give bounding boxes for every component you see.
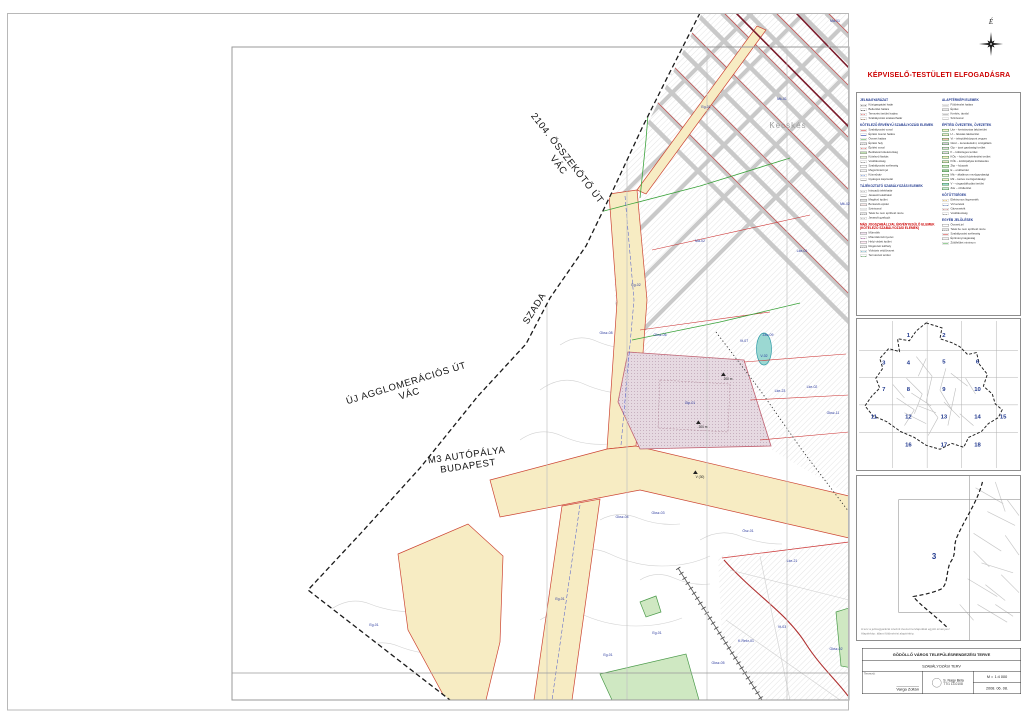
zone-label: Eg-01 [701,105,710,109]
index-sheet-number: 16 [905,442,912,448]
legend-swatch-icon [942,117,949,120]
legend-swatch-icon [860,108,867,111]
legend-swatch-icon [860,174,867,177]
legend-item-label: Gip – ipari gazdasági terület [951,147,986,150]
legend-item-label: Vt – településközpont vegyes [951,138,987,141]
legend-item-label: KÖk – kötöttpályás közlekedés [951,160,989,163]
legend-swatch-icon [860,232,867,235]
sheet-locator-panel: 3 A terv a jelmagyarázat szerinti övezet… [856,475,1021,641]
zone-label: V-02 [760,354,767,358]
locator-note: A terv a jelmagyarázat szerinti övezeti … [861,627,950,631]
north-label: É [988,18,994,26]
index-municipal-outline [865,323,1002,449]
title-block: GÖDÖLLŐ VÁROS TELEPÜLÉSRENDEZÉSI TERVE S… [862,648,1021,694]
index-sheet-number: 3 [882,360,886,366]
zone-label: Gksz-04 [615,515,628,519]
plan-subtitle: SZABÁLYOZÁSI TERV [863,661,1021,672]
legend-section-header: EGYÉB JELÖLÉSEK [942,219,1021,223]
index-sheet-number: 8 [907,387,911,393]
zone-label: Gksz-06 [653,333,666,337]
legend-item-label: Bontandó épület [869,203,889,206]
legend-item: Zöldfelület minimum [942,241,1021,246]
legend-swatch-icon [942,108,949,111]
plan-sheet: Má-01Mk-01Eg-01Mk-02Lke-01Má-02Eg-02Gksz… [0,0,1024,723]
legend-item-label: Zöldfelület minimum [951,242,976,245]
legend-item-label: Javasolt gyalogút [869,217,891,220]
legend-item-label: Megszüntető jel [869,169,889,172]
legend-swatch-icon [860,169,867,172]
legend-item-label: Kötelező fásítás [869,156,889,159]
legend-column-left: JELMAGYARÁZATKözigazgatási határBelterül… [860,96,939,258]
legend-item-label: Telek be nem építhető része [951,228,986,231]
zone-label: Gksz-05 [711,661,724,665]
road-name-label: ÚJ AGGLOMERÁCIÓS ÚTVÁC [345,360,471,418]
legend-item-label: Kerítés, támfal [951,113,969,116]
zone-label: Ösz-01 [742,529,753,533]
legend-item-label: Szabályozási szélesség [869,165,899,168]
zone-label: Mk-01 [777,97,787,101]
legend-item-label: Beültetési kötelezettség [869,151,899,154]
legend-swatch-icon [942,228,949,231]
legend-item-label: Zkp – közpark [951,165,969,168]
locator-sheet-number: 3 [932,552,937,561]
legend-swatch-icon [942,178,949,181]
locator-notes: A terv a jelmagyarázat szerinti övezeti … [861,627,950,635]
legend-item-label: Régészeti lelőhely [869,245,892,248]
legend-item-label: Javasolt telekhatár [869,194,892,197]
index-sheet-number: 9 [942,387,946,393]
legend-swatch-icon [860,217,867,220]
legend-swatch-icon [942,224,949,227]
index-sheet-number: 17 [941,442,948,448]
legend-swatch-icon [942,138,949,141]
svg-text:2104. ÖSSZEKÖTŐ ÚT: 2104. ÖSSZEKÖTŐ ÚT [528,111,605,206]
index-sheet-number: 5 [942,359,946,365]
zone-label: Gksz-08 [599,331,612,335]
zone-label: Mk-02 [840,202,850,206]
legend-swatch-icon [942,133,949,136]
scale-label: M = [987,675,993,680]
legend-swatch-icon [942,203,949,206]
index-sheet-numbers: 123456789101112131415161718 [871,333,1007,449]
legend-item-label: Tervezési terület határa [869,113,898,116]
legend-swatch-icon [860,133,867,136]
legend-swatch-icon [860,190,867,193]
zone-label: Lke-02 [807,385,818,389]
legend-section-header: TÁJÉKOZTATÓ SZABÁLYOZÁSI ELEMEK [860,185,939,189]
legend-swatch-icon [942,242,949,245]
legend-swatch-icon [860,142,867,145]
zone-label: Vt-07 [740,339,748,343]
index-sheet-number: 10 [974,387,981,393]
index-street-sketch [893,357,976,436]
legend-item-label: Irányadó telekhatár [869,190,893,193]
legend-panel: JELMAGYARÁZATKözigazgatási határBelterül… [856,92,1021,316]
legend-swatch-icon [860,212,867,215]
zone-label: Eg-01 [652,631,661,635]
legend-swatch-icon [860,236,867,239]
legend-swatch-icon [942,129,949,132]
legend-swatch-icon [942,142,949,145]
road-name-label: 2104. ÖSSZEKÖTŐ ÚTVÁC [520,111,606,213]
legend-swatch-icon [860,113,867,116]
legend-swatch-icon [942,237,949,240]
legend-swatch-icon [860,147,867,150]
legend-section-header: MÁS JOGSZABÁLLYAL ÉRVÉNYESÜLŐ ELEMEK (KÖ… [860,223,939,230]
index-sheet-number: 4 [907,360,911,366]
zone-label: Vt-03 [778,625,786,629]
legend-swatch-icon [942,147,949,150]
designer-cell: Tervező: Varga Zoltán [863,672,923,694]
legend-swatch-icon [942,156,949,159]
legend-item-label: Védőtávolság [951,212,968,215]
legend-swatch-icon [942,104,949,107]
legend-swatch-icon [860,199,867,202]
legend-item: Javasolt gyalogút [860,216,939,221]
zone-label: Lke-23 [775,389,786,393]
scale-value: 1:4 000 [995,675,1008,680]
legend-swatch-icon [860,129,867,132]
index-sheet-number: 11 [871,415,878,421]
legend-item-label: Lke – kertvárosias lakóterület [951,129,987,132]
legend-item-label: Szabályozási vonal [869,129,893,132]
zone-label: Eg-01 [369,623,378,627]
legend-item-label: Szintvonal [951,117,964,120]
index-grid [859,321,1018,468]
measure-label: V (30) [696,475,705,479]
legend-swatch-icon [860,203,867,206]
legend-section-header: JELMAGYARÁZAT [860,99,939,103]
legend-section-header: ALAPTÉRKÉPI ELEMEK [942,99,1021,103]
index-sheet-number: 1 [907,333,911,339]
legend-item: Záv – zöldterület [942,187,1021,192]
legend-item-label: Építési övezet határa [869,133,895,136]
legend-item-label: Záv – zöldterület [951,187,972,190]
index-sheet-number: 12 [905,415,912,421]
legend-section-header: KÖTÖTTSÉGEK [942,194,1021,198]
legend-section-header: KÖTELEZŐ ÉRVÉNYŰ SZABÁLYOZÁSI ELEMEK [860,124,939,128]
zone-label: Má-01 [830,19,840,23]
legend-swatch-icon [942,169,949,172]
legend-item-label: Helyi védett épület [869,241,892,244]
legend-item-label: Övezeti jel [951,224,964,227]
scale-date-cell: M = 1:4 000 2008. 06. 08. [974,672,1021,694]
legend-item-label: Meglévő épület [869,199,888,202]
north-arrow: É [974,14,1010,62]
plan-date: 2008. 06. 08. [974,683,1021,694]
legend-item-label: Műemléki környezet [869,236,894,239]
index-sheet-number: 2 [942,333,946,339]
designer-label: Tervező: [864,673,875,676]
legend-swatch-icon [860,138,867,141]
legend-item: Természeti terület [860,254,939,259]
legend-swatch-icon [860,178,867,181]
approval-status-title: KÉPVISELŐ-TESTÜLETI ELFOGADÁSRA [854,72,1024,79]
measure-label: 200 m [699,425,708,429]
locator-note: Alaptérkép: állami földmérési alaptérkép… [861,632,915,636]
legend-item-label: Gksz – kereskedelmi, szolgáltató [951,142,992,145]
legend-item-label: Földrészlet határa [951,104,973,107]
locator-boundary [913,482,982,628]
zone-label: Eg-01 [603,653,612,657]
index-sheet-number: 14 [974,415,981,421]
legend-swatch-icon [942,113,949,116]
legend-item-label: Mk – kertes mezőgazdasági [951,178,986,181]
legend-item-label: Építési hely [869,142,883,145]
legend-item-label: E – erdőterület [951,169,969,172]
locator-street-sketch [960,482,1019,622]
stamp-icon [932,678,942,688]
legend-swatch-icon [860,241,867,244]
legend-item-label: Közigazgatási határ [869,104,894,107]
index-map-panel: 123456789101112131415161718 [856,318,1021,471]
legend-swatch-icon [942,212,949,215]
index-sheet-number: 15 [1000,415,1007,421]
compass-star-icon [979,32,1003,56]
legend-item-label: KÖu – közúti közlekedési terület [951,156,991,159]
legend-swatch-icon [860,104,867,107]
zone-label: Gksz-11 [827,411,840,415]
plan-title: GÖDÖLLŐ VÁROS TELEPÜLÉSRENDEZÉSI TERVE [863,649,1021,662]
legend-item-label: V – vízgazdálkodási terület [951,183,984,186]
zone-label: Gksz-02 [829,647,842,651]
legend-swatch-icon [860,165,867,168]
legend-item-label: Vízvezeték [951,203,965,206]
district-label: Kecskés [769,121,806,130]
zone-label: Eg-01 [555,597,564,601]
legend-item-label: Övezet határa [869,138,887,141]
legend-item: Védőtávolság [942,212,1021,217]
legend-item-label: Gyalogos kapcsolat [869,178,893,181]
legend-swatch-icon [860,151,867,154]
map-canvas: Má-01Mk-01Eg-01Mk-02Lke-01Má-02Eg-02Gksz… [7,13,850,711]
legend-swatch-icon [942,160,949,163]
index-sheet-number: 7 [882,387,886,393]
legend-swatch-icon [942,199,949,202]
index-sheet-number: 13 [941,415,948,421]
zone-label: Eg-02 [631,283,640,287]
zone-label: Gksz-03 [651,511,664,515]
legend-section-header: ÉPÍTÉSI ÖVEZETEK, ÖVEZETEK [942,124,1021,128]
legend-swatch-icon [942,165,949,168]
map-content [7,13,850,711]
zone-label: Má-02 [695,239,705,243]
legend-item-label: Természeti terület [869,254,891,257]
legend-swatch-icon [942,187,949,190]
legend-item-label: Szintvonal [869,208,882,211]
architect-cell: S. Nagy Béla TT/1 13-0108 [923,672,974,694]
legend-item-label: K – különleges terület [951,151,978,154]
legend-item-label: Má – általános mezőgazdasági [951,174,990,177]
legend-item-label: Műemlék [869,232,880,235]
legend-item-label: Védőtávolság [869,160,886,163]
legend-swatch-icon [942,151,949,154]
legend-item: Szabályozási szakaszhatár [860,117,939,122]
legend-swatch-icon [860,254,867,257]
designer-name: Varga Zoltán [896,686,919,692]
measure-label: 200 m [724,377,733,381]
zone-label: Gip-01 [685,401,696,405]
zone-label: K-Rekr-01 [738,639,754,643]
legend-item: Gyalogos kapcsolat [860,178,939,183]
legend-item-label: Belterület határa [869,108,890,111]
legend-item-label: Épület [951,108,959,111]
legend-swatch-icon [860,117,867,120]
legend-item-label: Telek be nem építhető része [869,212,904,215]
legend-swatch-icon [942,183,949,186]
legend-item-label: Gázvezeték [951,208,966,211]
legend-swatch-icon [860,245,867,248]
legend-item-label: Lf – falusias lakóterület [951,133,980,136]
legend-item-label: Építménymagasság [951,237,976,240]
legend-swatch-icon [942,174,949,177]
legend-item-label: Szabályozási szakaszhatár [869,117,903,120]
architect-license: TT/1 13-0108 [943,683,963,687]
legend-item-label: Elektromos légvezeték [951,199,979,202]
legend-swatch-icon [942,233,949,236]
legend-item-label: Építési vonal [869,147,885,150]
legend-column-right: ALAPTÉRKÉPI ELEMEKFöldrészlet határaÉpül… [942,96,1021,246]
legend-swatch-icon [860,160,867,163]
zone-label: Záv-09 [763,333,774,337]
legend-item: Szintvonal [942,117,1021,122]
legend-item-label: Szabályozási szélesség [951,233,981,236]
index-sheet-number: 18 [974,442,981,448]
legend-item-label: Vízbázis védőövezet [869,250,895,253]
legend-swatch-icon [860,194,867,197]
zone-label: Lke-21 [787,559,798,563]
legend-swatch-icon [942,208,949,211]
legend-swatch-icon [860,250,867,253]
zone-label: Lke-01 [797,249,808,253]
legend-swatch-icon [860,208,867,211]
legend-item-label: Közműsáv [869,174,882,177]
legend-swatch-icon [860,156,867,159]
